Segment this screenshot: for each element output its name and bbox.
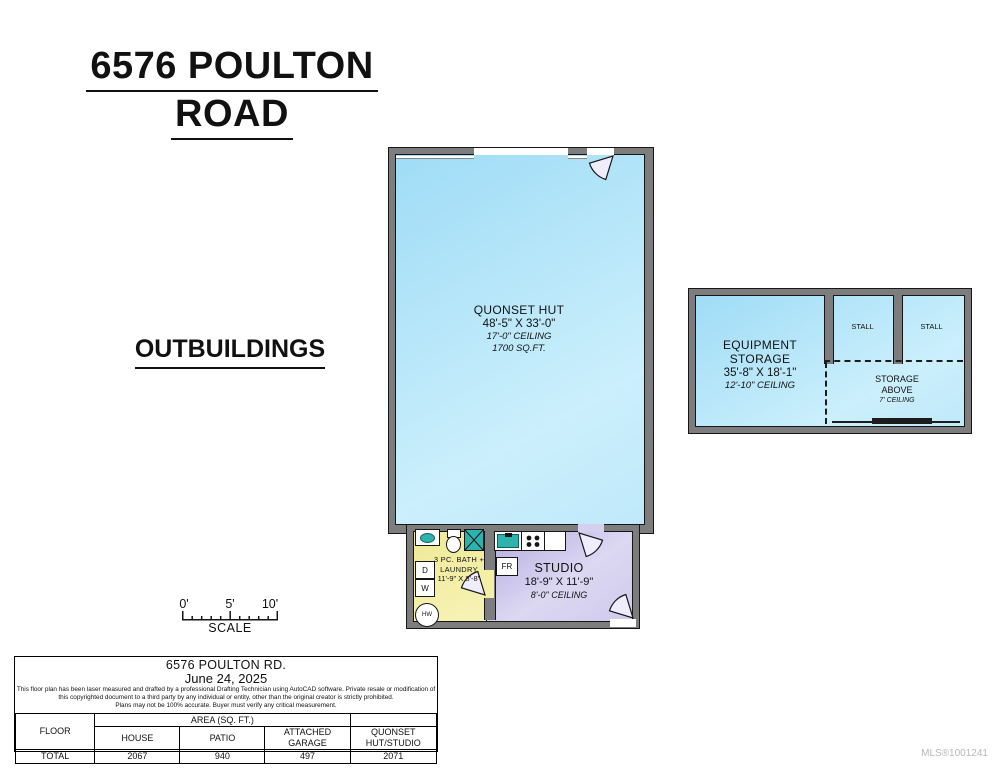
info-address: 6576 POULTON RD. (15, 658, 437, 672)
area-table-value-patio: 940 (180, 750, 265, 764)
page-title: 6576 POULTON ROAD (58, 44, 406, 140)
bathroom-sink-icon (415, 529, 440, 546)
section-label-outbuildings: OUTBUILDINGS (112, 335, 348, 369)
studio-bottom-door-opening (610, 619, 636, 627)
bath-name-line1: 3 PC. BATH + (430, 555, 488, 565)
storage-above-ceiling: 7' CEILING (832, 396, 962, 405)
quonset-garage-opening (474, 148, 568, 155)
area-table-area-header: AREA (SQ. FT.) (95, 714, 350, 727)
washer-box: W (415, 579, 435, 597)
stove-icon (522, 532, 545, 550)
studio-labels: STUDIO 18'-9" X 11'-9" 8'-0" CEILING (487, 561, 631, 601)
bath-name-line2: LAUNDRY (430, 565, 488, 575)
kitchen-sink-icon (495, 532, 522, 550)
equipment-storage-labels: EQUIPMENT STORAGE 35'-8" X 18'-1" 12'-10… (695, 338, 825, 392)
stall-label-1: STALL (832, 322, 893, 331)
area-table-empty-cell (350, 714, 436, 727)
area-table-col-patio: PATIO (180, 727, 265, 750)
sliding-door-panel (872, 418, 932, 424)
bath-labels: 3 PC. BATH + LAUNDRY 11'-9" X 8'-8" (430, 555, 488, 584)
bath-dimensions: 11'-9" X 8'-8" (430, 574, 488, 584)
info-box: 6576 POULTON RD. June 24, 2025 This floo… (14, 656, 438, 752)
storage-above-line1: STORAGE (832, 374, 962, 385)
equipment-storage-name: EQUIPMENT STORAGE (695, 338, 825, 366)
door-icon (588, 155, 614, 181)
scale-label: SCALE (182, 621, 278, 635)
scale-tick-5: 5' (220, 597, 240, 611)
door-icon (578, 532, 604, 558)
studio-dimensions: 18'-9" X 11'-9" (487, 575, 631, 589)
area-table-value-house: 2067 (95, 750, 180, 764)
area-table-value-garage: 497 (265, 750, 350, 764)
stall-label-2: STALL (901, 322, 962, 331)
studio-top-door-opening (578, 524, 604, 532)
area-table-col-quonset: QUONSET HUT/STUDIO (350, 727, 436, 750)
kitchen-counter (494, 531, 566, 551)
quonset-labels: QUONSET HUT 48'-5" X 33'-0" 17'-0" CEILI… (395, 303, 643, 355)
info-date: June 24, 2025 (15, 672, 437, 686)
water-heater-icon: HW (415, 603, 439, 627)
area-table-value-quonset: 2071 (350, 750, 436, 764)
quonset-area: 1700 SQ.FT. (395, 343, 643, 355)
storage-above-line2: ABOVE (832, 385, 962, 396)
studio-ceiling: 8'-0" CEILING (487, 589, 631, 601)
area-table-row-label: TOTAL (16, 750, 95, 764)
storage-above-boundary-h (824, 360, 963, 362)
quonset-name: QUONSET HUT (395, 303, 643, 317)
area-table-col-house: HOUSE (95, 727, 180, 750)
dryer-box: D (415, 561, 435, 579)
equipment-storage-dimensions: 35'-8" X 18'-1" (695, 366, 825, 380)
scale-ruler (182, 610, 278, 621)
disclaimer-line3: Plans may not be 100% accurate. Buyer mu… (15, 702, 437, 710)
storage-above-labels: STORAGE ABOVE 7' CEILING (832, 374, 962, 405)
quonset-header-line (396, 156, 474, 159)
disclaimer-line1: This floor plan has been laser measured … (15, 686, 437, 694)
shower-icon (464, 529, 484, 551)
studio-name: STUDIO (487, 561, 631, 575)
scale-tick-0: 0' (174, 597, 194, 611)
counter-section (545, 532, 565, 550)
quonset-dimensions: 48'-5" X 33'-0" (395, 317, 643, 331)
quonset-ceiling: 17'-0" CEILING (395, 331, 643, 343)
scale-tick-10: 10' (258, 597, 282, 611)
page-title-line2: ROAD (171, 92, 293, 140)
area-table-floor-header: FLOOR (16, 714, 95, 750)
storage-above-boundary-v (825, 362, 827, 424)
page-title-line1: 6576 POULTON (86, 44, 377, 92)
area-table: FLOOR AREA (SQ. FT.) HOUSE PATIO ATTACHE… (15, 713, 437, 764)
disclaimer-line2: this copyrighted document to a third par… (15, 694, 437, 702)
area-table-col-garage: ATTACHED GARAGE (265, 727, 350, 750)
floor-plan-page: 6576 POULTON ROAD OUTBUILDINGS QUONSET H… (0, 0, 994, 768)
equipment-storage-ceiling: 12'-10" CEILING (695, 380, 825, 392)
toilet-icon (446, 536, 461, 553)
quonset-door-opening (587, 148, 614, 155)
mls-number: MLS®1001241 (898, 748, 988, 759)
quonset-header-line (568, 156, 587, 159)
